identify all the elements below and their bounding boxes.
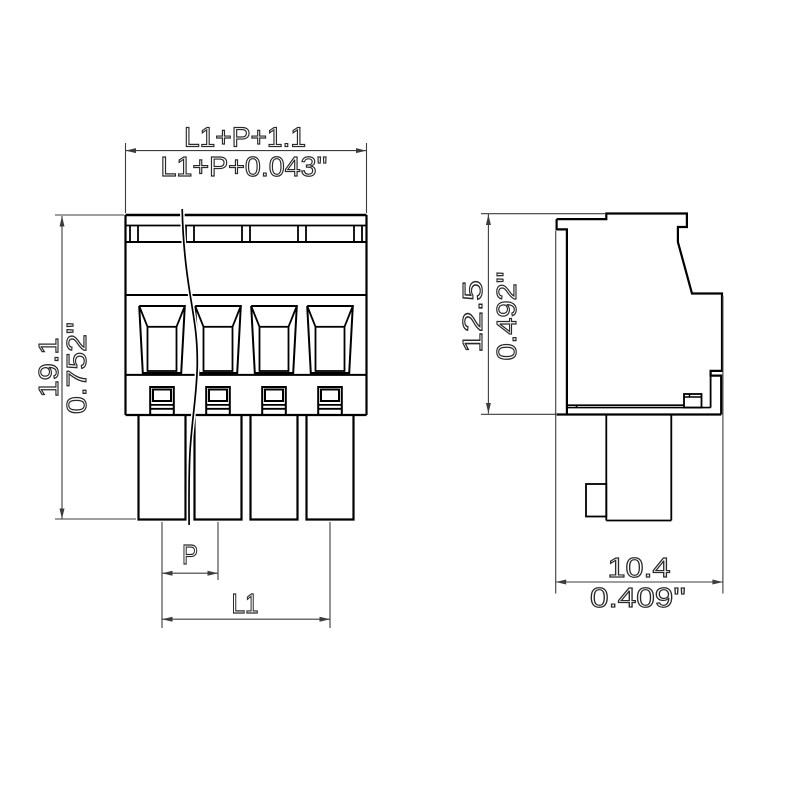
svg-text:0.409'': 0.409'' bbox=[590, 582, 686, 613]
svg-text:12.5: 12.5 bbox=[457, 280, 488, 353]
svg-text:0.492'': 0.492'' bbox=[491, 272, 522, 361]
svg-text:L1+P+1.1: L1+P+1.1 bbox=[184, 122, 306, 153]
svg-text:10.4: 10.4 bbox=[608, 552, 671, 583]
svg-text:L1: L1 bbox=[232, 588, 259, 619]
svg-text:L1+P+0.043'': L1+P+0.043'' bbox=[161, 151, 328, 182]
svg-text:P: P bbox=[182, 539, 198, 570]
svg-text:19.1: 19.1 bbox=[33, 338, 64, 398]
svg-text:0.752'': 0.752'' bbox=[61, 322, 92, 414]
